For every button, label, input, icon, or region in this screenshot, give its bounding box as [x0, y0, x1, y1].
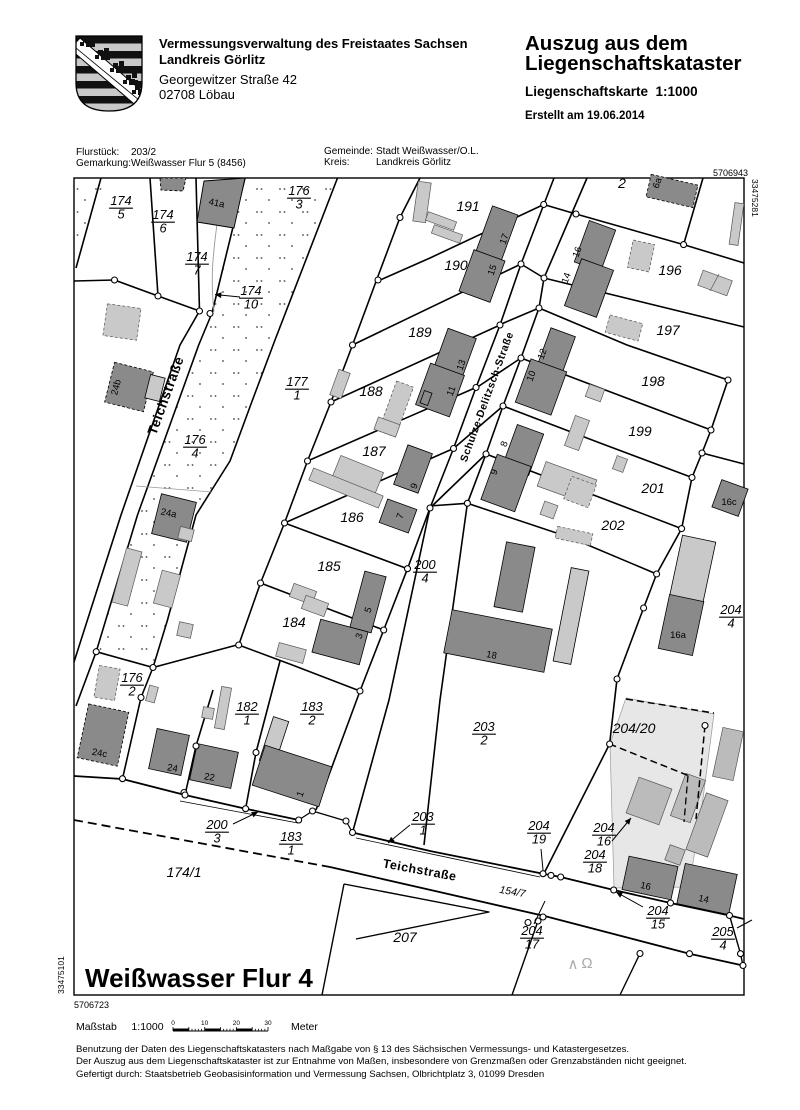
svg-text:2: 2 [617, 175, 626, 191]
svg-text:4: 4 [719, 938, 726, 953]
svg-text:204/20: 204/20 [612, 720, 656, 736]
svg-text:0: 0 [171, 1020, 175, 1027]
svg-text:16c: 16c [721, 497, 737, 508]
svg-text:174/1: 174/1 [166, 864, 201, 880]
svg-text:18: 18 [588, 861, 603, 876]
svg-text:Weißwasser Flur 4: Weißwasser Flur 4 [85, 963, 313, 993]
svg-text:186: 186 [340, 509, 364, 525]
svg-text:191: 191 [456, 198, 479, 214]
svg-text:7: 7 [193, 263, 201, 278]
svg-text:2: 2 [127, 684, 135, 699]
svg-text:1: 1 [419, 823, 426, 838]
svg-text:5706723: 5706723 [74, 1000, 109, 1010]
svg-text:2: 2 [479, 733, 487, 748]
svg-text:19: 19 [532, 832, 546, 847]
svg-text:207: 207 [392, 929, 418, 945]
svg-text:5: 5 [117, 207, 125, 222]
svg-text:4: 4 [191, 446, 198, 461]
svg-text:5706943: 5706943 [713, 168, 748, 178]
svg-text:10: 10 [244, 297, 259, 312]
svg-text:196: 196 [658, 262, 682, 278]
svg-text:188: 188 [359, 383, 383, 399]
svg-text:16a: 16a [670, 630, 687, 641]
svg-text:10: 10 [201, 1020, 209, 1027]
svg-text:202: 202 [600, 517, 625, 533]
svg-text:187: 187 [362, 443, 387, 459]
svg-text:∧: ∧ [568, 956, 579, 973]
svg-text:3: 3 [295, 197, 302, 212]
svg-text:Ω: Ω [581, 955, 592, 972]
svg-text:16: 16 [639, 880, 652, 893]
svg-text:185: 185 [317, 558, 341, 574]
svg-text:4: 4 [727, 616, 734, 631]
svg-text:33475101: 33475101 [56, 956, 66, 994]
svg-text:18: 18 [485, 649, 497, 662]
svg-text:15: 15 [651, 917, 666, 932]
svg-text:30: 30 [264, 1020, 272, 1027]
svg-text:3: 3 [213, 831, 220, 846]
svg-text:197: 197 [656, 322, 681, 338]
svg-text:20: 20 [233, 1020, 241, 1027]
svg-text:199: 199 [628, 423, 652, 439]
svg-text:190: 190 [444, 257, 468, 273]
svg-text:201: 201 [640, 480, 664, 496]
svg-text:33475281: 33475281 [750, 179, 760, 217]
svg-text:2: 2 [307, 713, 315, 728]
svg-text:184: 184 [282, 614, 306, 630]
svg-text:22: 22 [203, 771, 215, 784]
svg-text:6: 6 [159, 221, 167, 236]
svg-text:198: 198 [641, 373, 665, 389]
svg-text:17: 17 [525, 937, 540, 952]
svg-text:189: 189 [408, 324, 432, 340]
svg-text:24: 24 [166, 762, 178, 775]
svg-text:4: 4 [421, 571, 428, 586]
svg-text:1: 1 [293, 388, 300, 403]
svg-text:1: 1 [243, 713, 250, 728]
svg-text:14: 14 [697, 893, 710, 906]
svg-text:1: 1 [287, 843, 294, 858]
